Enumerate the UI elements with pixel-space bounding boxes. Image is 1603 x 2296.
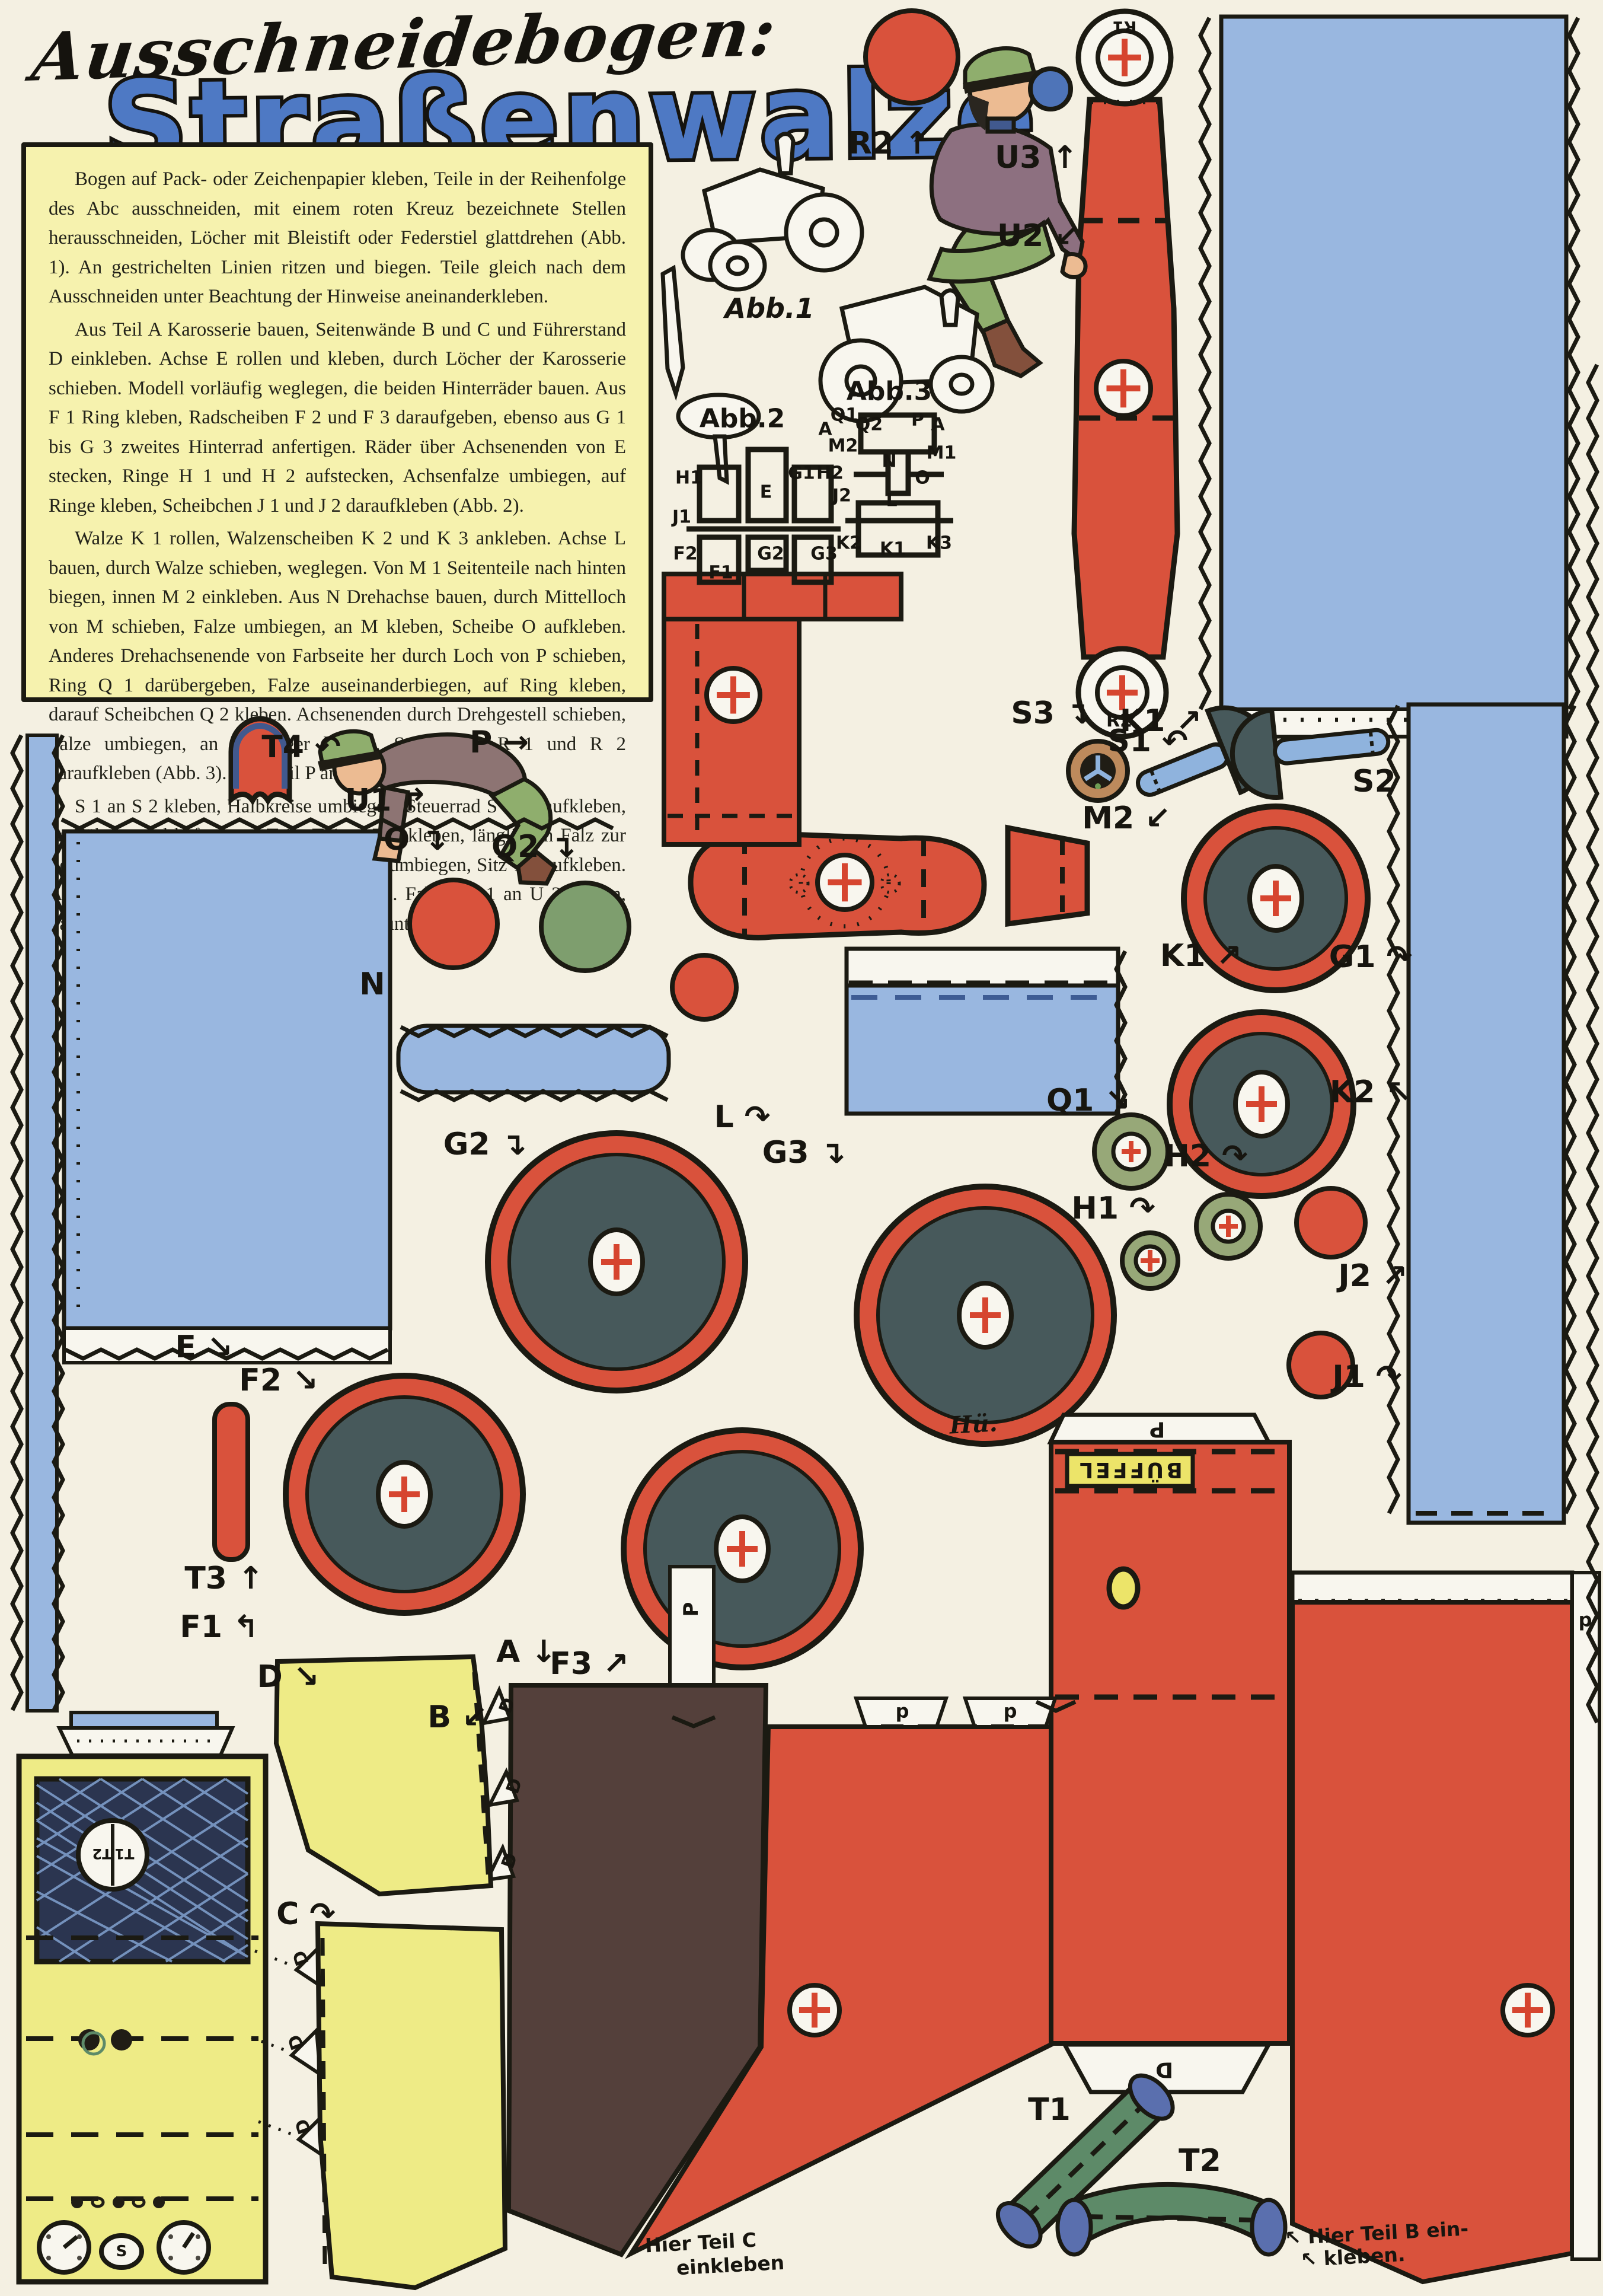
cutout-sheet-page: Ausschneidebogen: Straßenwalze Bogen auf… bbox=[0, 0, 1603, 2296]
part-label-t3: T3 ↑ bbox=[184, 1561, 263, 1596]
abb3-label-k1: K1 bbox=[880, 539, 906, 560]
zigzag-cut-edge bbox=[12, 735, 21, 1710]
part-label-t4: T4 ↶ bbox=[261, 729, 340, 765]
part-t3-strip bbox=[215, 1404, 248, 1560]
wheel-f3 bbox=[621, 1427, 864, 1670]
abb2-label-e: E bbox=[760, 482, 772, 503]
ring-q1 bbox=[1094, 1115, 1168, 1188]
part-label-f1: F1 ↰ bbox=[180, 1609, 258, 1645]
printed-mark-r2: R2 bbox=[1106, 711, 1132, 732]
part-label-t2: T2 bbox=[1179, 2143, 1221, 2179]
abb3-label-l: L bbox=[886, 490, 897, 511]
cut-hole bbox=[790, 1985, 839, 2035]
abb2-label-g1: G1 bbox=[788, 463, 815, 484]
annotation-signature: Hü. bbox=[949, 1409, 998, 1439]
printed-mark-r1: R1 bbox=[1112, 18, 1136, 37]
abb2-label-j1: J1 bbox=[672, 507, 691, 528]
cut-hole bbox=[818, 855, 872, 910]
part-label-q2: Q2 ↴ bbox=[491, 829, 576, 865]
abb3-label-k3: K3 bbox=[926, 533, 952, 554]
abb2-label-g3: G3 bbox=[810, 544, 838, 565]
cut-hole bbox=[1098, 31, 1151, 84]
part-d-cab-panel bbox=[19, 1713, 266, 2282]
cut-hole bbox=[1096, 361, 1151, 416]
printed-mark-s: S bbox=[116, 2243, 127, 2260]
part-label-u1: U1 ↱ bbox=[345, 783, 428, 818]
part-g1-ring-strip bbox=[1409, 704, 1564, 1523]
disc-j2 bbox=[1297, 1188, 1365, 1257]
ring-h2 bbox=[1196, 1194, 1260, 1258]
wheel-f2 bbox=[283, 1373, 526, 1616]
zigzag-cut-edge bbox=[1200, 18, 1209, 709]
disc-r1 bbox=[672, 955, 736, 1019]
abb3-label-o: O bbox=[915, 468, 930, 489]
part-label-b: B ↙ bbox=[427, 1699, 487, 1735]
part-e-axle bbox=[64, 831, 390, 1363]
printed-mark-d: d bbox=[896, 1702, 909, 1725]
printed-mark-d: d bbox=[1579, 1611, 1592, 1634]
abb3-label-p: P bbox=[911, 410, 924, 430]
nameplate-buffel: BÜFFEL bbox=[1067, 1454, 1193, 1486]
printed-mark-d: D bbox=[1155, 2058, 1173, 2082]
abb2-label-h1: H1 bbox=[675, 468, 702, 489]
part-label-j1: J1 ↷ bbox=[1332, 1359, 1401, 1395]
part-t2-strut bbox=[1058, 2185, 1285, 2254]
printed-mark-t1: T1 bbox=[114, 1845, 134, 1862]
part-f1-ring-strip bbox=[27, 735, 57, 1711]
part-label-s2: S2 bbox=[1352, 764, 1396, 799]
part-label-f2: F2 ↘ bbox=[239, 1363, 318, 1398]
part-label-d: D ↘ bbox=[257, 1659, 320, 1695]
part-label-l: L ↷ bbox=[714, 1099, 771, 1135]
abb2-label-g2: G2 bbox=[757, 544, 784, 565]
part-label-g3: G3 ↴ bbox=[762, 1135, 846, 1171]
part-c-side-wall bbox=[251, 1924, 505, 2288]
disc-r2 bbox=[866, 11, 958, 103]
part-label-g1: G1 ↷ bbox=[1329, 939, 1413, 975]
part-label-c: C ↷ bbox=[276, 1896, 336, 1932]
disc-q2 bbox=[541, 883, 629, 971]
part-label-q1: Q1 ↘ bbox=[1046, 1083, 1131, 1118]
ring-h1 bbox=[1122, 1233, 1178, 1289]
part-label-e: E ↘ bbox=[175, 1329, 232, 1365]
part-label-h2: H2 ↷ bbox=[1164, 1139, 1247, 1174]
part-k1-roller-mantle bbox=[1221, 17, 1566, 736]
part-p-steering-box bbox=[664, 574, 901, 844]
abb3-label-abb3: Abb.3 bbox=[847, 377, 932, 407]
abb2-label-h2: H2 bbox=[816, 463, 844, 484]
abb3-label-k2: K2 bbox=[836, 533, 862, 554]
cut-hole bbox=[1503, 1985, 1553, 2035]
part-label-s3: S3 ↴ bbox=[1011, 696, 1091, 731]
part-label-r2: R2 ↑ bbox=[848, 126, 930, 161]
abb3-label-q1: Q1 bbox=[831, 405, 858, 426]
part-label-n: N bbox=[359, 967, 385, 1002]
part-label-j2: J2 ↗ bbox=[1338, 1258, 1407, 1294]
part-label-g2: G2 ↴ bbox=[443, 1127, 527, 1162]
disc-u3 bbox=[1030, 69, 1071, 109]
disc-o bbox=[410, 880, 497, 968]
zigzag-cut-edge bbox=[1588, 365, 1597, 1723]
printed-mark-d: d bbox=[1004, 1702, 1017, 1725]
abb2-label-j2: J2 bbox=[832, 486, 851, 506]
cut-hole bbox=[707, 668, 760, 722]
part-label-k2: K2 ↖ bbox=[1330, 1074, 1412, 1110]
zigzag-cut-edge bbox=[1569, 18, 1578, 709]
caption-abb1: Abb.1 bbox=[725, 292, 815, 324]
part-label-f3: F3 ↗ bbox=[550, 1646, 628, 1682]
part-label-p: P → bbox=[470, 725, 529, 760]
abb3-label-m2: M2 bbox=[828, 436, 858, 457]
part-label-h1: H1 ↷ bbox=[1071, 1191, 1155, 1226]
part-label-m2: M2 ↙ bbox=[1082, 801, 1171, 836]
abb2-label-f1: F1 bbox=[708, 563, 733, 583]
abb3-label-q2: Q2 bbox=[855, 414, 883, 435]
part-label-u3: U3 ↑ bbox=[995, 140, 1078, 176]
abb2-label-f2: F2 bbox=[673, 544, 697, 565]
printed-mark-p: P bbox=[1149, 1417, 1165, 1442]
part-label-t1: T1 bbox=[1028, 2092, 1071, 2128]
wheel-g2 bbox=[485, 1130, 748, 1393]
zigzag-cut-edge bbox=[1566, 706, 1575, 1513]
abb3-label-n: N bbox=[882, 451, 896, 472]
abb3-label-a: A bbox=[931, 414, 944, 435]
printed-mark-p: P bbox=[679, 1602, 703, 1617]
abb2-label-abb2: Abb.2 bbox=[700, 404, 785, 434]
printed-mark-t2: T2 bbox=[92, 1845, 111, 1862]
part-label-a: A ↓ bbox=[496, 1634, 557, 1670]
abb3-label-m1: M1 bbox=[927, 443, 957, 464]
part-label-k1: K1 ↗ bbox=[1160, 938, 1242, 974]
part-m2-bogie-inner bbox=[1008, 828, 1087, 924]
part-label-o: O ↴ bbox=[384, 822, 446, 857]
part-label-u2: U2 ↙ bbox=[997, 218, 1080, 254]
